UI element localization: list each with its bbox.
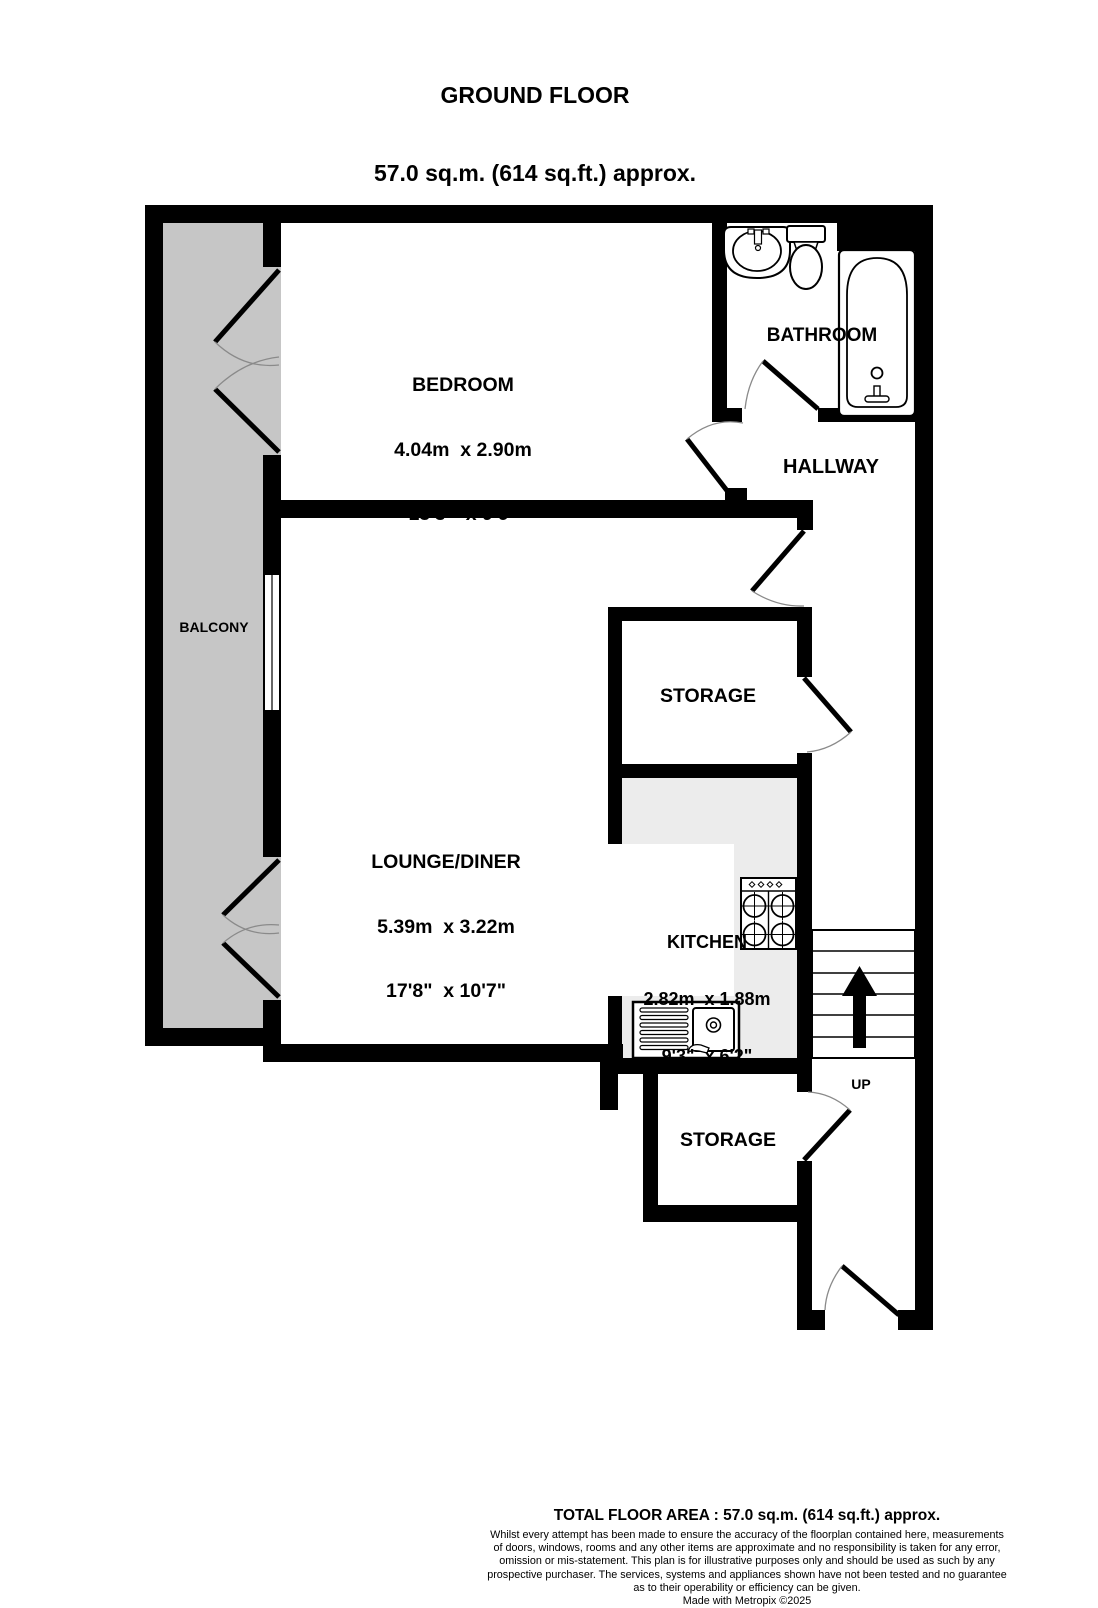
room-label-balcony: BALCONY <box>179 620 248 636</box>
room-label-kitchen: KITCHEN 2.82m x 1.88m 9'3" x 6'2" <box>643 895 770 1104</box>
bathroom-door <box>745 361 818 409</box>
staircase <box>812 930 915 1058</box>
lounge-door <box>752 531 804 606</box>
disclaimer-text: Whilst every attempt has been made to en… <box>487 1529 1007 1595</box>
storage-lower-door <box>804 1092 850 1160</box>
window <box>264 574 280 711</box>
footer: TOTAL FLOOR AREA : 57.0 sq.m. (614 sq.ft… <box>487 1507 1007 1608</box>
storage-upper-door <box>804 678 851 752</box>
room-label-hallway: HALLWAY <box>783 456 879 478</box>
floor-area: 57.0 sq.m. (614 sq.ft.) approx. <box>374 160 696 186</box>
floor-plan-drawing <box>0 0 1098 1600</box>
total-floor-area: TOTAL FLOOR AREA : 57.0 sq.m. (614 sq.ft… <box>487 1507 1007 1525</box>
room-label-lounge-diner: LOUNGE/DINER 5.39m x 3.22m 17'8" x 10'7" <box>371 809 521 1046</box>
page-title: GROUND FLOOR 57.0 sq.m. (614 sq.ft.) app… <box>374 30 696 238</box>
room-label-storage-upper: STORAGE <box>660 686 756 708</box>
toilet <box>787 226 825 289</box>
floor-name: GROUND FLOOR <box>374 82 696 108</box>
metropix-credit: Made with Metropix ©2025 <box>487 1595 1007 1608</box>
room-label-storage-lower: STORAGE <box>680 1130 776 1152</box>
stairs-up-label: UP <box>851 1077 870 1093</box>
room-label-bedroom: BEDROOM 4.04m x 2.90m 13'3" x 9'6" <box>394 332 532 569</box>
front-door <box>825 1266 899 1315</box>
room-label-bathroom: BATHROOM <box>767 325 877 346</box>
wash-basin <box>724 227 790 278</box>
